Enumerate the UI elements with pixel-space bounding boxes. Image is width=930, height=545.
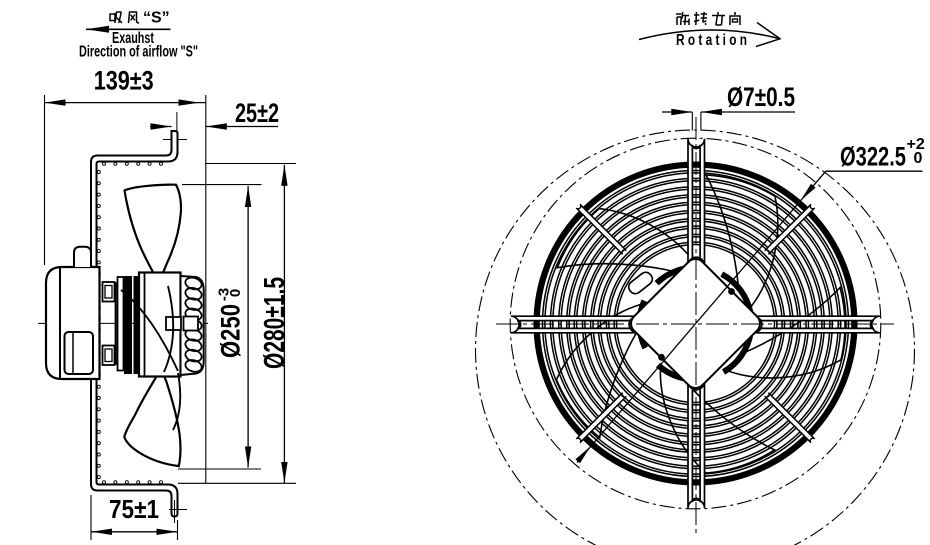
svg-text:Ø280±1.5: Ø280±1.5	[259, 277, 291, 369]
svg-text:R o t a t i o n: R o t a t i o n	[676, 32, 747, 49]
svg-text:-3: -3	[216, 288, 233, 301]
svg-text:Ø250: Ø250	[216, 304, 246, 358]
svg-text:25±2: 25±2	[235, 98, 279, 128]
svg-text:Ø7±0.5: Ø7±0.5	[727, 82, 795, 112]
svg-text:Direction of airflow "S": Direction of airflow "S"	[79, 43, 198, 60]
svg-text:“S”: “S”	[143, 10, 170, 27]
svg-text:139±3: 139±3	[94, 66, 154, 96]
svg-text:75±1: 75±1	[109, 494, 159, 524]
svg-text:0: 0	[914, 150, 923, 167]
svg-text:Ø322.5: Ø322.5	[840, 142, 906, 172]
